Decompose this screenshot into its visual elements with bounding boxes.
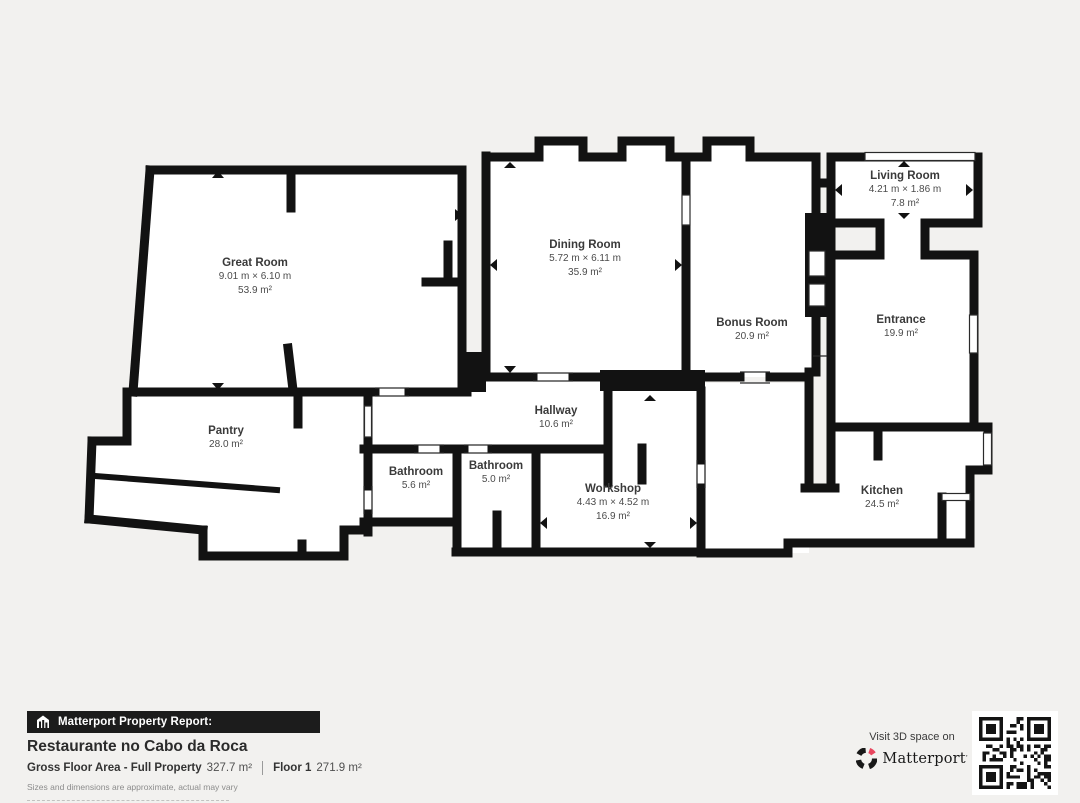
floor-area-stats: Gross Floor Area - Full Property 327.7 m… bbox=[27, 761, 362, 775]
floor-plan bbox=[0, 0, 1080, 803]
property-report-page: Great Room 9.01 m × 6.10 m 53.9 m² Dinin… bbox=[0, 0, 1080, 803]
building-icon bbox=[36, 715, 50, 729]
matterport-logo-icon bbox=[856, 748, 877, 769]
room-bonus bbox=[686, 157, 816, 377]
report-bar-label: Matterport Property Report: bbox=[58, 716, 212, 728]
visit-3d-text: Visit 3D space on bbox=[856, 731, 968, 743]
stats-divider bbox=[262, 761, 263, 775]
window-niche-2 bbox=[809, 284, 825, 306]
property-title: Restaurante no Cabo da Roca bbox=[27, 738, 248, 756]
vestibule bbox=[880, 223, 925, 255]
window-living-top bbox=[865, 153, 975, 161]
cropped-divider bbox=[27, 800, 229, 801]
window-kitchen-east bbox=[984, 433, 992, 465]
window-dining-east bbox=[682, 195, 690, 225]
floor-label: Floor 1 bbox=[273, 762, 311, 774]
room-entrance bbox=[831, 255, 974, 427]
room-dining bbox=[486, 156, 686, 377]
window-entrance-east bbox=[970, 315, 978, 353]
report-header-bar: Matterport Property Report: bbox=[27, 711, 320, 733]
window-niche-1 bbox=[809, 251, 825, 276]
gross-area-label: Gross Floor Area - Full Property bbox=[27, 762, 202, 774]
room-bathroom-1 bbox=[364, 449, 457, 522]
matterport-wordmark: Matterport bbox=[882, 751, 965, 767]
visit-3d-block: Visit 3D space on Matterport’ bbox=[856, 731, 968, 769]
room-great-room bbox=[133, 170, 462, 392]
gross-area-value: 327.7 m² bbox=[207, 762, 252, 774]
light-shaft bbox=[813, 358, 827, 483]
floor-value: 271.9 m² bbox=[316, 762, 361, 774]
window-kitchen-south bbox=[942, 494, 970, 501]
window-hallway-west bbox=[365, 406, 372, 437]
qr-code bbox=[972, 711, 1058, 795]
matterport-trademark: ’ bbox=[966, 754, 968, 763]
disclaimer-text: Sizes and dimensions are approximate, ac… bbox=[27, 782, 238, 792]
